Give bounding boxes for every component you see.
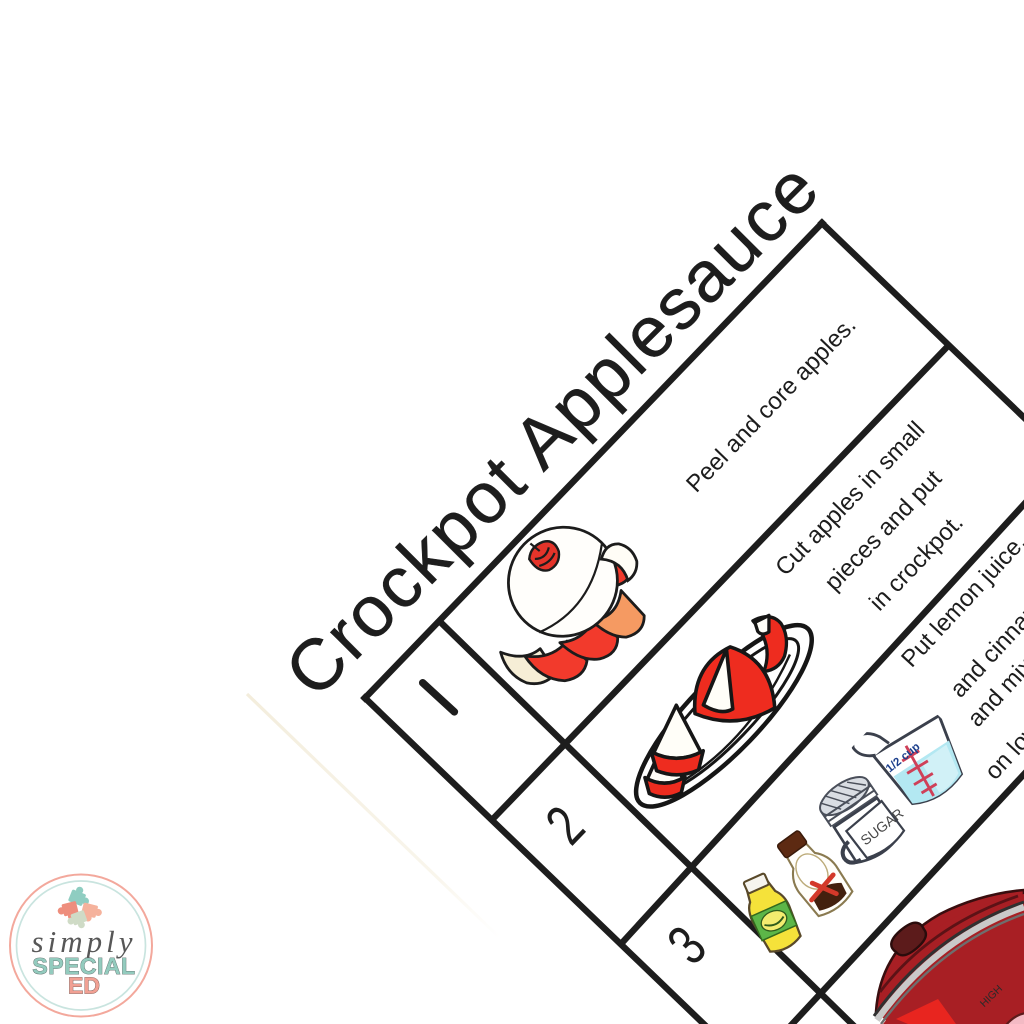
svg-text:ED: ED	[68, 973, 100, 999]
